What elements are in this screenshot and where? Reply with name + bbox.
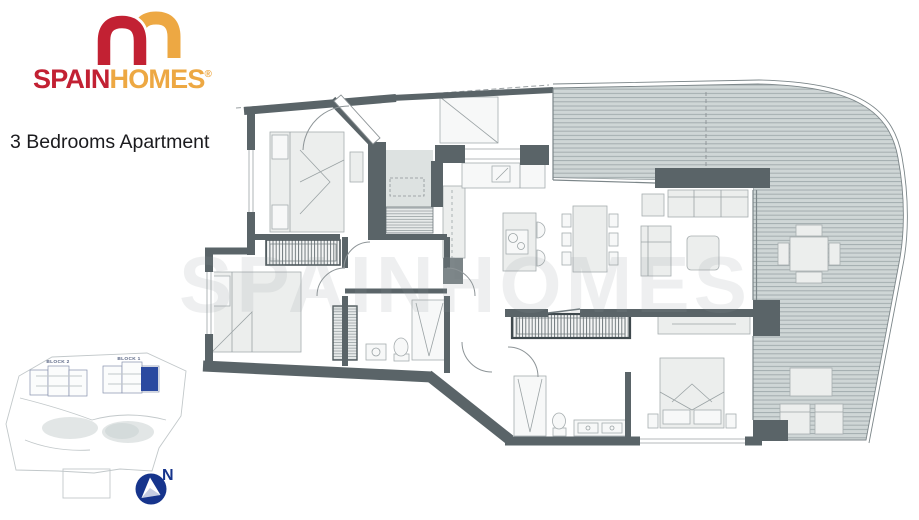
master-bed-icon (648, 358, 736, 428)
bathroom1-floor (386, 150, 433, 207)
site-block-1 (103, 362, 159, 393)
page-title: 3 Bedrooms Apartment (10, 131, 210, 153)
watermark-text: SPAINHOMES (179, 240, 751, 329)
kitchen-counter-icon (462, 163, 545, 188)
sun-lounger-icon-2 (815, 404, 843, 434)
site-block-2 (30, 366, 87, 396)
brand-wordmark: SPAINHOMES® (33, 64, 213, 94)
double-bed-icon (270, 132, 344, 232)
floorplan-canvas: SPAINHOMES SPAINHOMES® 3 Bedrooms Apartm… (0, 0, 919, 520)
double-sink-icon (574, 420, 628, 436)
block2-label: BLOCK 2 (46, 359, 69, 365)
north-label: N (162, 467, 174, 484)
sofa-icon (668, 190, 748, 217)
floorplan-page: SPAINHOMES SPAINHOMES® 3 Bedrooms Apartm… (0, 0, 919, 520)
outdoor-low-table (790, 368, 832, 396)
shower-slats-icon (386, 207, 433, 233)
bedroom1-dresser (350, 152, 363, 182)
entry-closet-icon (440, 97, 498, 143)
highlighted-unit (141, 367, 158, 391)
bathroom2-sink-icon (366, 344, 386, 360)
side-table (642, 194, 664, 216)
pool (105, 423, 139, 439)
master-wardrobe-v-icon (514, 376, 546, 436)
north-compass-icon: N (136, 467, 174, 505)
floorplan: SPAINHOMES (179, 80, 907, 446)
master-toilet-icon (553, 413, 567, 436)
brand-arches-icon (104, 18, 174, 65)
spainhomes-logo: SPAINHOMES® (33, 18, 213, 94)
toilet-icon (394, 338, 409, 361)
block1-label: BLOCK 1 (117, 356, 140, 362)
